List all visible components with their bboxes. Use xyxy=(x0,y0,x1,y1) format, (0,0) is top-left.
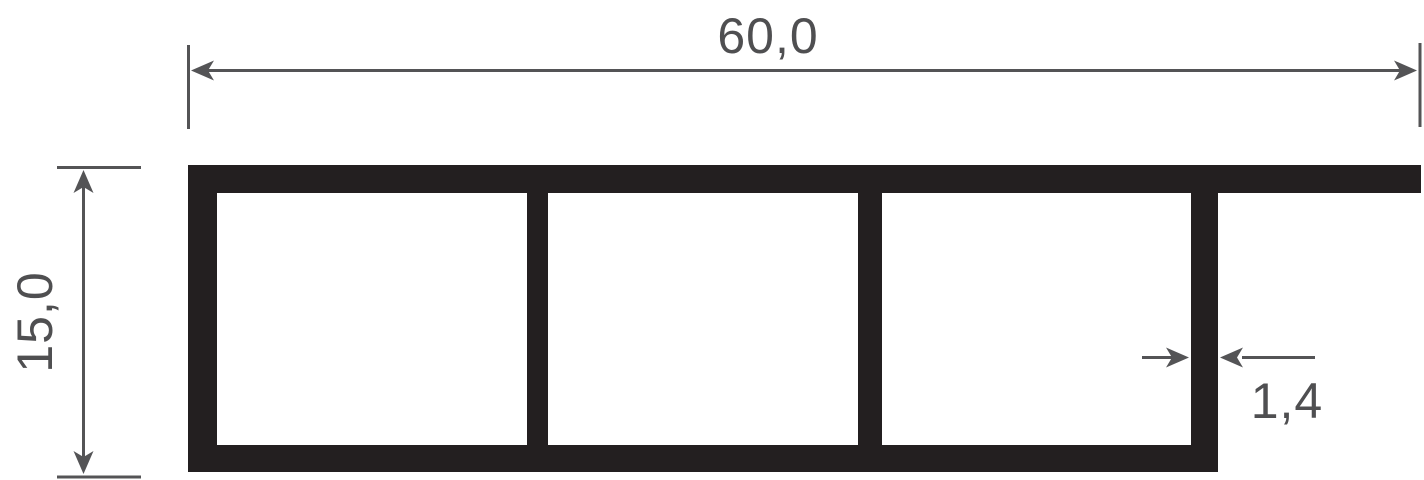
height-dimension-value: 15,0 xyxy=(7,271,63,372)
height-dimension: 15,0 xyxy=(7,168,141,478)
wall-thickness-dimension: 1,4 xyxy=(1142,348,1323,430)
technical-drawing-canvas: 60,0 15,0 1,4 xyxy=(0,0,1424,480)
width-dimension: 60,0 xyxy=(189,8,1421,129)
profile-cross-section-shape xyxy=(188,165,1421,472)
profile-drawing: 60,0 15,0 1,4 xyxy=(0,0,1424,480)
wall-thickness-value: 1,4 xyxy=(1251,373,1324,429)
arrowhead-left-small-icon xyxy=(1220,348,1243,368)
width-dimension-value: 60,0 xyxy=(717,8,818,64)
